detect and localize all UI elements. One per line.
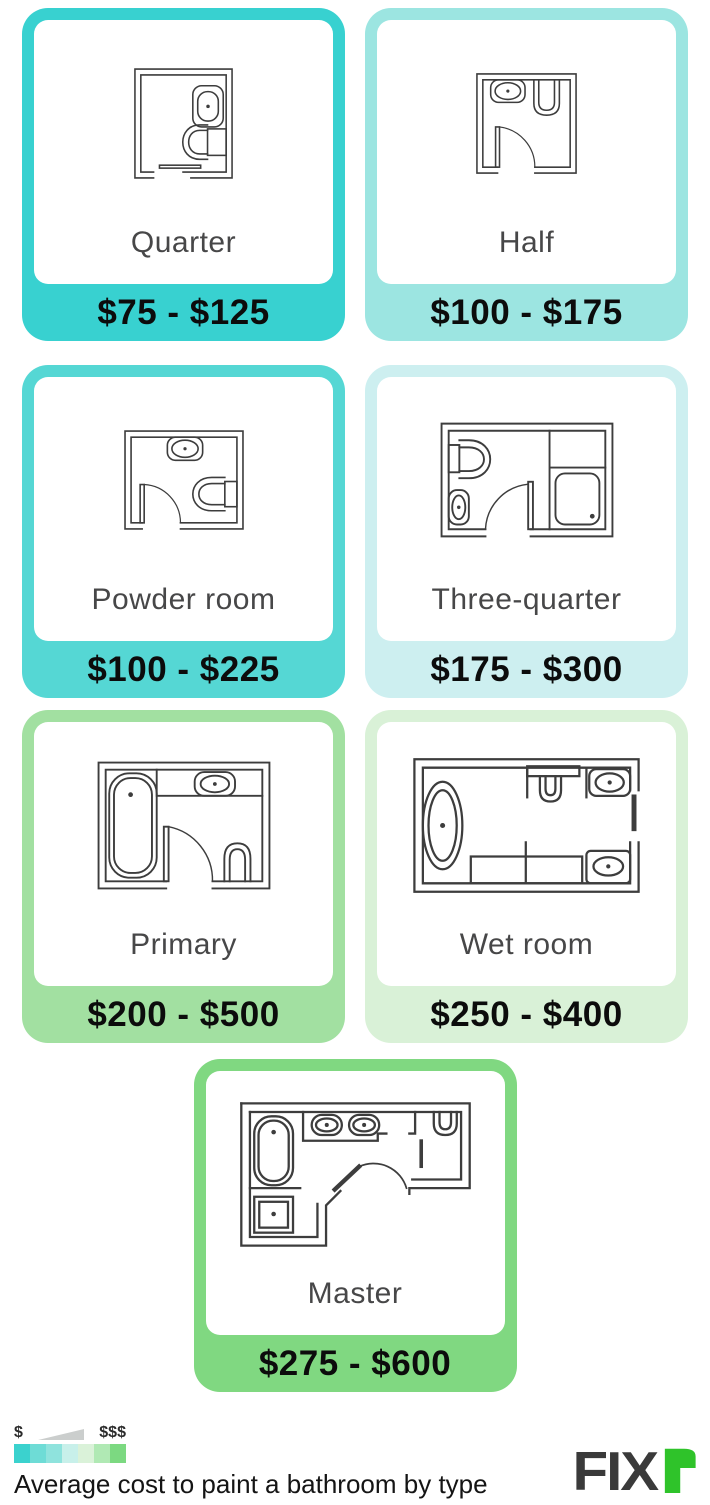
card-wet-room-body: Wet room <box>377 722 676 986</box>
price-scale-labels: $ $$$ <box>14 1424 126 1442</box>
card-quarter: Quarter $75 - $125 <box>22 8 345 341</box>
card-wet-room: Wet room $250 - $400 <box>365 710 688 1043</box>
three-quarter-floorplan-icon <box>438 420 616 540</box>
card-three-quarter: Three-quarter $175 - $300 <box>365 365 688 698</box>
scale-swatch <box>30 1444 46 1463</box>
card-row-2: Powder room $100 - $225 <box>22 365 688 698</box>
legend-low-label: $ <box>14 1424 23 1442</box>
bottom-strip: $ $$$ Average cost to paint a bathroom b… <box>0 1424 710 1500</box>
primary-floorplan-icon <box>95 759 273 892</box>
card-powder-room-price: $100 - $225 <box>34 641 333 698</box>
scale-swatch <box>94 1444 110 1463</box>
card-quarter-price: $75 - $125 <box>34 284 333 341</box>
cost-cards-grid: Quarter $75 - $125 <box>0 0 710 1392</box>
scale-swatch <box>78 1444 94 1463</box>
half-floorplan-icon <box>474 71 579 176</box>
card-master-price: $275 - $600 <box>206 1335 505 1392</box>
card-primary-body: Primary <box>34 722 333 986</box>
card-three-quarter-body: Three-quarter <box>377 377 676 641</box>
card-quarter-body: Quarter <box>34 20 333 284</box>
card-quarter-label: Quarter <box>131 226 236 284</box>
card-master-body: Master <box>206 1071 505 1335</box>
price-color-scale <box>14 1444 126 1463</box>
scale-swatch <box>110 1444 126 1463</box>
wet-room-floorplan-icon <box>410 755 643 896</box>
card-half-price: $100 - $175 <box>377 284 676 341</box>
price-wedge-icon <box>38 1429 84 1440</box>
fixr-logo-text: FIX <box>574 1443 660 1493</box>
card-wet-room-price: $250 - $400 <box>377 986 676 1043</box>
card-master-label: Master <box>308 1277 403 1335</box>
scale-swatch <box>14 1444 30 1463</box>
fixr-logo-r-glyph <box>665 1449 696 1493</box>
card-master: Master $275 - $600 <box>194 1059 517 1392</box>
card-half-body: Half <box>377 20 676 284</box>
scale-swatch <box>46 1444 62 1463</box>
card-row-4: Master $275 - $600 <box>22 1059 688 1392</box>
card-three-quarter-label: Three-quarter <box>432 583 622 641</box>
card-powder-room-body: Powder room <box>34 377 333 641</box>
card-powder-room: Powder room $100 - $225 <box>22 365 345 698</box>
quarter-floorplan-icon <box>132 66 235 181</box>
master-floorplan-icon <box>237 1099 474 1250</box>
fixr-logo: FIX <box>574 1443 698 1498</box>
card-wet-room-label: Wet room <box>460 928 593 986</box>
card-row-1: Quarter $75 - $125 <box>22 8 688 341</box>
card-row-3: Primary $200 - $500 <box>22 710 688 1043</box>
powder-room-floorplan-icon <box>122 428 246 532</box>
card-primary-label: Primary <box>130 928 237 986</box>
card-primary: Primary $200 - $500 <box>22 710 345 1043</box>
card-three-quarter-price: $175 - $300 <box>377 641 676 698</box>
card-powder-room-label: Powder room <box>92 583 276 641</box>
scale-swatch <box>62 1444 78 1463</box>
fixr-logo-icon: FIX <box>574 1443 698 1493</box>
card-primary-price: $200 - $500 <box>34 986 333 1043</box>
card-half: Half $100 - $175 <box>365 8 688 341</box>
card-half-label: Half <box>499 226 554 284</box>
legend-high-label: $$$ <box>99 1424 126 1442</box>
